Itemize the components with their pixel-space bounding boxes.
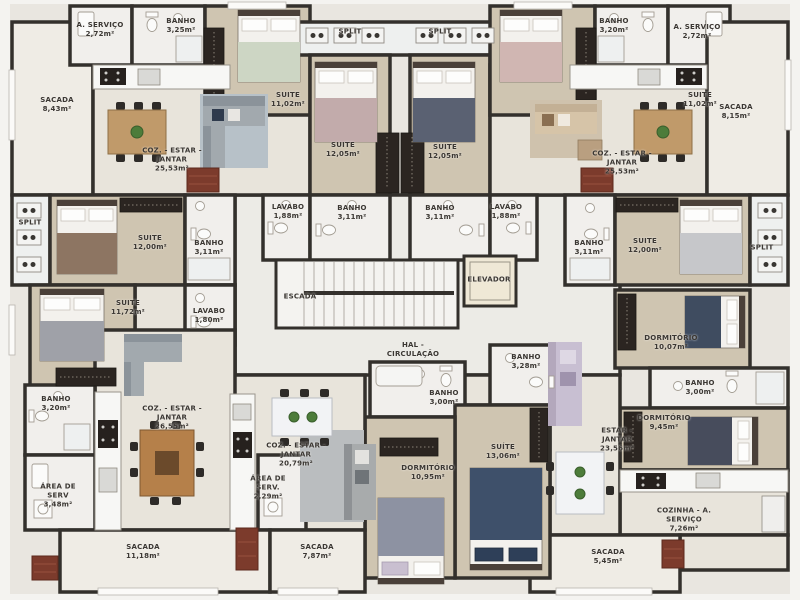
bed: [500, 10, 562, 82]
stairs: [276, 260, 458, 328]
bed: [238, 10, 300, 82]
sink-basin: [610, 14, 619, 23]
plant: [575, 467, 585, 477]
kitchen-counter: [93, 65, 230, 89]
plant: [289, 412, 299, 422]
bed: [378, 498, 444, 584]
toilet: [316, 224, 336, 236]
shower: [756, 372, 784, 404]
sink-basin: [282, 201, 291, 210]
laundry-tub: [32, 464, 48, 488]
room-split-top: [298, 22, 502, 55]
kitchen-counter: [230, 394, 255, 530]
table-centerpiece: [155, 451, 179, 475]
room-cozinha-br2: [680, 535, 788, 570]
sink-basin: [444, 201, 453, 210]
washer: [264, 498, 282, 516]
toilet: [268, 222, 288, 234]
dining-table: [634, 102, 692, 162]
bed: [315, 62, 377, 142]
room-servico-bc: [258, 455, 306, 530]
shower: [64, 424, 90, 450]
room-sacada-bc: [270, 530, 365, 592]
plant: [307, 412, 317, 422]
toilet: [191, 316, 211, 328]
kitchen-counter: [95, 392, 121, 530]
kitchen-counter: [570, 65, 707, 89]
sink-basin: [508, 201, 517, 210]
plant: [131, 126, 143, 138]
dining-table: [130, 421, 204, 505]
sink-basin: [586, 204, 595, 213]
stove: [636, 473, 666, 489]
plant: [575, 489, 585, 499]
stove: [98, 420, 118, 448]
bed: [40, 289, 104, 361]
bed: [685, 296, 745, 348]
toilet: [642, 12, 654, 32]
sink: [99, 468, 117, 492]
floor-plan-canvas: [0, 0, 800, 600]
room-sacada-tr: [707, 22, 788, 195]
sink: [638, 69, 660, 85]
bed: [680, 200, 742, 274]
washer: [34, 500, 52, 518]
sink-basin: [674, 382, 683, 391]
sink: [233, 404, 251, 420]
sink: [696, 473, 720, 488]
stair-rail: [304, 291, 454, 295]
toilet: [440, 366, 452, 387]
sink-basin: [196, 294, 205, 303]
sofa: [344, 444, 376, 520]
shower: [176, 36, 202, 62]
sink-basin: [54, 392, 63, 401]
shower: [598, 36, 624, 62]
toilet: [726, 371, 738, 393]
sink-basin: [174, 14, 183, 23]
stove: [676, 68, 702, 85]
room-sacada-br: [530, 535, 680, 592]
bed: [413, 62, 475, 142]
stove: [233, 432, 252, 458]
sink-basin: [196, 202, 205, 211]
dining-table: [546, 452, 614, 514]
toilet: [29, 410, 49, 422]
elevator-shaft: [464, 256, 516, 306]
bed: [470, 468, 542, 570]
bathtub: [376, 366, 422, 386]
laundry-tub: [78, 12, 94, 36]
toilet: [146, 12, 158, 32]
bed: [57, 200, 117, 274]
shower: [188, 258, 230, 280]
laundry-tub: [706, 12, 722, 36]
stove: [100, 68, 126, 85]
floor-plan: SACADA8,43m²A. SERVIÇO2,72m²BANHO3,25m²C…: [0, 0, 800, 600]
sink-basin: [348, 201, 357, 210]
sink: [138, 69, 160, 85]
sink-basin: [506, 354, 515, 363]
dining-table: [108, 102, 166, 162]
bed: [688, 417, 758, 465]
fridge: [762, 496, 785, 532]
toilet: [191, 228, 211, 240]
shower: [570, 258, 610, 280]
plant: [657, 126, 669, 138]
